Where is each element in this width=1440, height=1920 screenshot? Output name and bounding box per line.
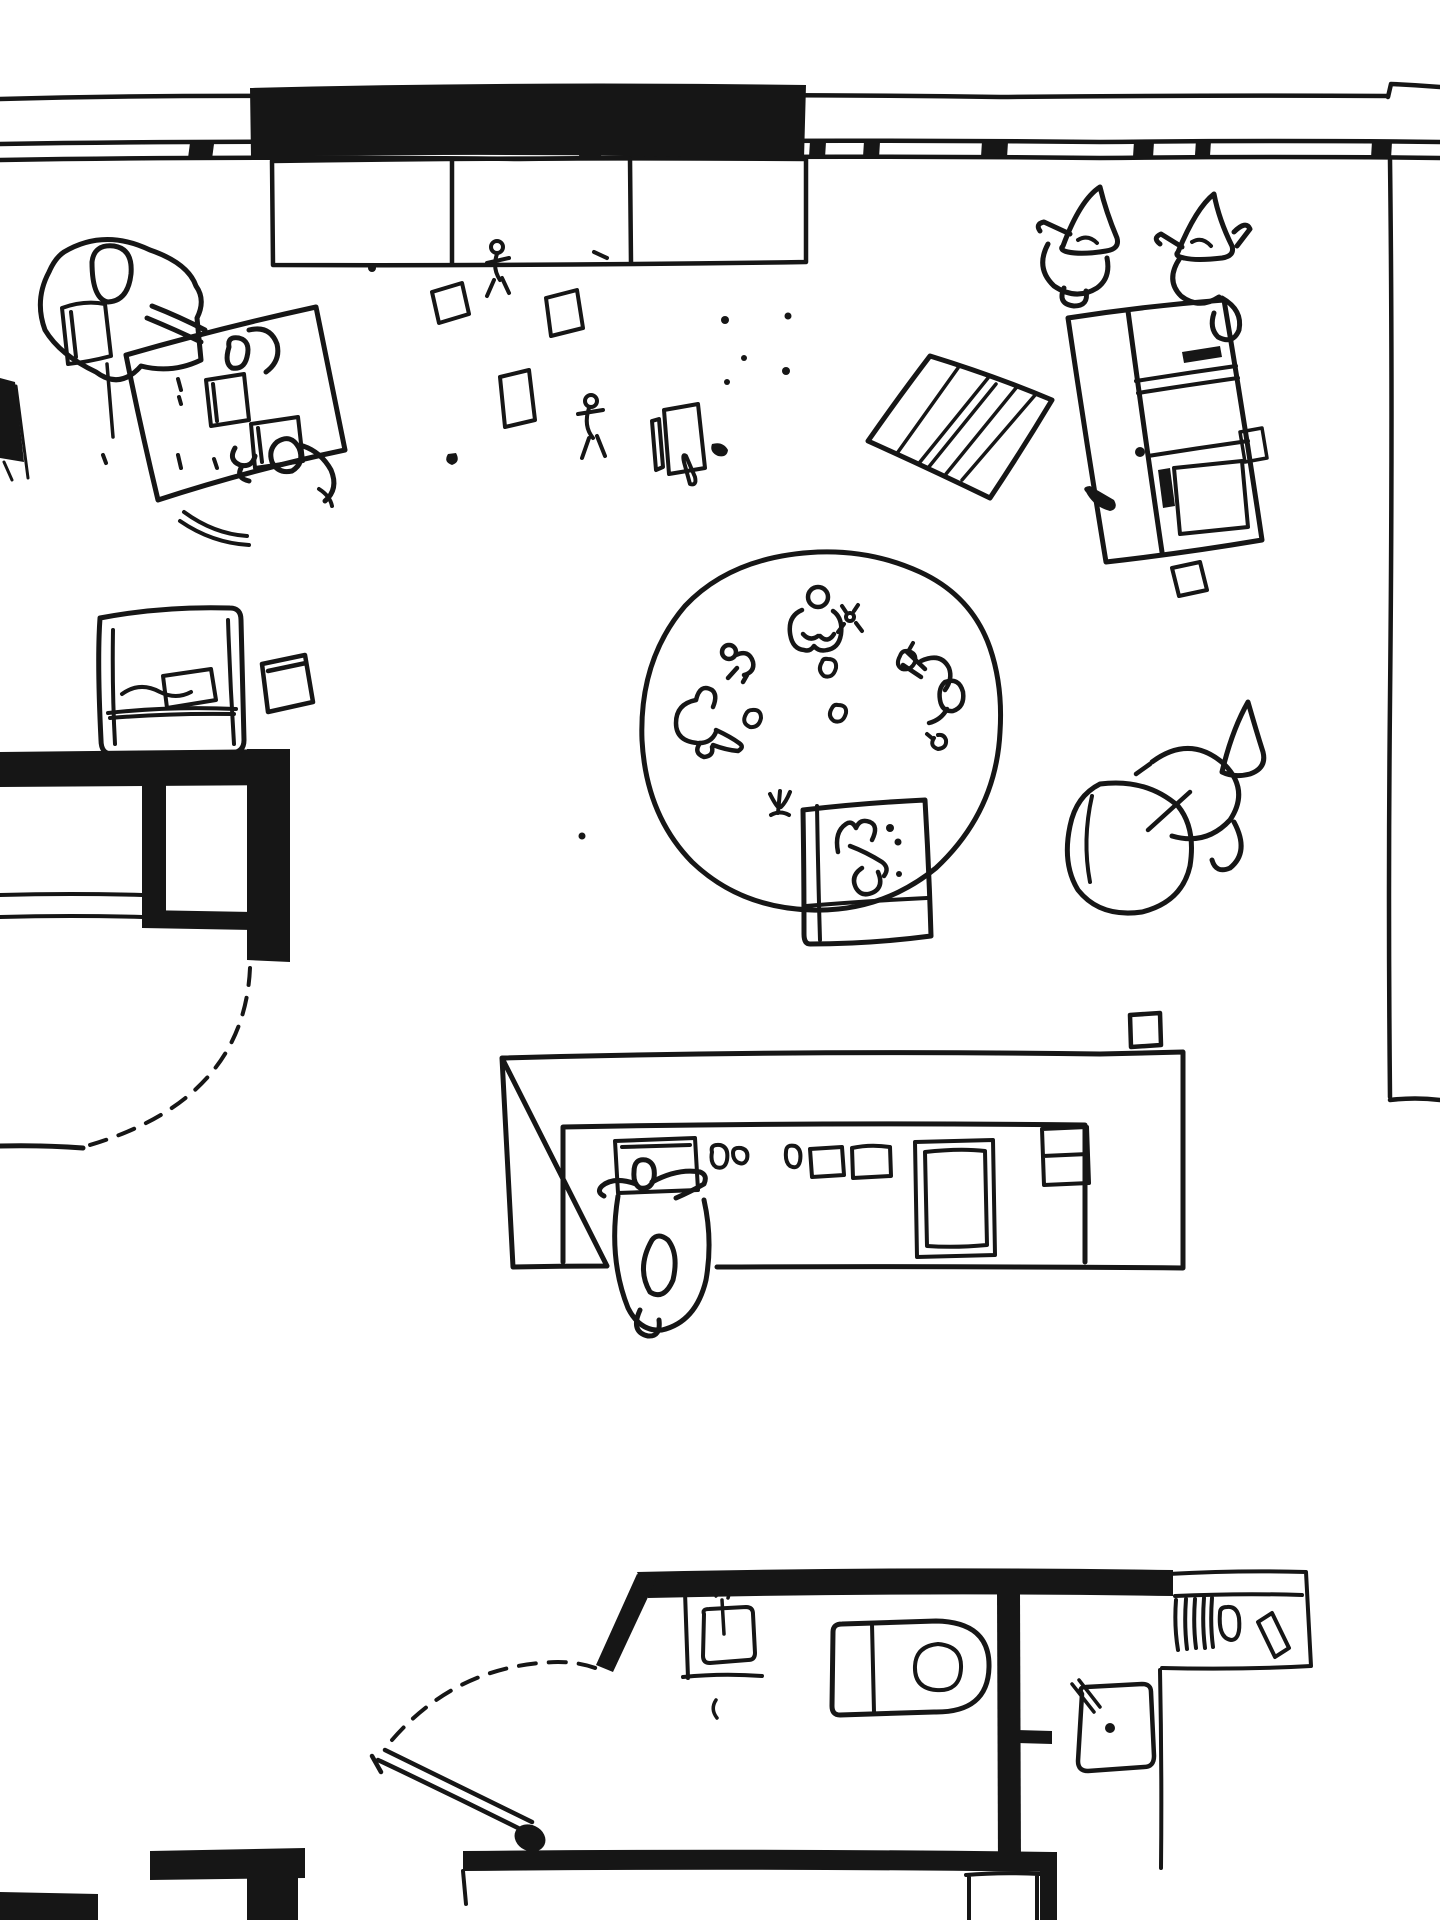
bathroom-block bbox=[0, 1568, 1311, 1920]
floor-mat bbox=[803, 800, 931, 944]
closet-door-leaf bbox=[0, 1146, 83, 1148]
desk-group bbox=[40, 239, 345, 545]
window-wall-step bbox=[1388, 84, 1440, 97]
rug-child-sitting bbox=[790, 587, 842, 651]
wall-bar-bottom-left-v bbox=[247, 1878, 298, 1920]
bath-wall-top bbox=[637, 1568, 1173, 1598]
standing-child-right bbox=[1156, 194, 1250, 340]
paper bbox=[500, 370, 535, 427]
kitchen-counter bbox=[502, 1013, 1183, 1336]
rug-object bbox=[744, 710, 761, 727]
armchair-blanket bbox=[163, 669, 216, 708]
bottom-right-room-lines bbox=[966, 1873, 1040, 1920]
bath-toilet bbox=[832, 1621, 989, 1715]
mat-child bbox=[837, 821, 887, 894]
rug-object bbox=[830, 705, 846, 722]
clerestory-band bbox=[250, 84, 806, 159]
beanbag-child-hat bbox=[1222, 702, 1264, 776]
counter-side-square bbox=[1130, 1013, 1161, 1047]
cabinet-black-comma bbox=[1084, 486, 1116, 511]
teacher-head bbox=[92, 246, 131, 302]
comma-mark bbox=[711, 443, 728, 456]
counter-bowl bbox=[786, 1146, 801, 1168]
counter-box bbox=[852, 1146, 891, 1178]
person-board bbox=[615, 1138, 698, 1193]
counter-shelf bbox=[1042, 1127, 1089, 1185]
right-wall bbox=[1389, 160, 1440, 1100]
desk-leg-line bbox=[107, 364, 113, 437]
person-body bbox=[615, 1196, 709, 1330]
bath-door-swing bbox=[392, 1662, 598, 1740]
desk-child-top-arm bbox=[249, 329, 278, 372]
teacher-figure bbox=[40, 239, 201, 379]
armchair bbox=[99, 608, 244, 757]
bath-sink-left bbox=[683, 1589, 762, 1678]
counter-stove bbox=[915, 1140, 995, 1257]
bath-door-leaf bbox=[378, 1750, 532, 1832]
ladder-strokes bbox=[1175, 1598, 1213, 1650]
right-wall-line bbox=[1389, 160, 1392, 1097]
bath-wall-diagonal bbox=[596, 1574, 656, 1672]
paper bbox=[432, 283, 469, 323]
bath-door bbox=[372, 1662, 598, 1857]
counter-person bbox=[599, 1138, 709, 1336]
bath-wall-stub bbox=[1017, 1730, 1052, 1744]
wall-bar-bottom-right bbox=[1040, 1852, 1057, 1920]
ladder-cup bbox=[1220, 1607, 1240, 1640]
window-bench bbox=[272, 158, 806, 265]
niche-item bbox=[1258, 1613, 1289, 1657]
paper bbox=[546, 290, 583, 336]
small-dash bbox=[594, 252, 607, 258]
running-child-small-2 bbox=[578, 395, 605, 458]
running-child-small-1 bbox=[487, 241, 509, 296]
floorplan-sketch bbox=[0, 0, 1440, 1920]
striped-mat bbox=[868, 356, 1052, 498]
person-leg bbox=[643, 1236, 675, 1295]
cabinet-black-bar bbox=[1158, 468, 1175, 508]
right-wall-corner bbox=[1390, 1099, 1440, 1101]
desk-dashes bbox=[103, 379, 217, 468]
small-paren-mark bbox=[713, 1700, 717, 1718]
wardrobe-cabinet bbox=[1068, 300, 1267, 596]
bath-wall-bottom bbox=[463, 1850, 1053, 1872]
rug-child-lying bbox=[903, 652, 963, 723]
paper-strip bbox=[652, 419, 663, 470]
pillow bbox=[262, 655, 313, 712]
circle-rug bbox=[642, 552, 1001, 910]
rug-child-kneeling bbox=[676, 688, 742, 757]
bath-sink-right bbox=[1072, 1680, 1154, 1771]
cabinet-bit-below bbox=[1172, 562, 1207, 596]
rug-sprout-toy bbox=[770, 791, 790, 815]
rug-object-small bbox=[927, 734, 946, 749]
rug-object bbox=[820, 659, 836, 677]
wall-bar-bottom-left-h bbox=[150, 1848, 305, 1880]
blob bbox=[446, 453, 458, 465]
desk-child-top-head bbox=[227, 338, 248, 369]
floorplan-svg bbox=[0, 0, 1440, 1920]
counter-box bbox=[810, 1147, 844, 1177]
closet-door-swing bbox=[83, 968, 250, 1147]
bath-wall-vertical bbox=[997, 1592, 1021, 1868]
wall-stub-left bbox=[0, 378, 28, 480]
paper-bits bbox=[721, 313, 792, 386]
wall-bar-corner bbox=[0, 1892, 98, 1920]
standing-child-left bbox=[1038, 187, 1117, 306]
counter-bowl bbox=[733, 1148, 747, 1164]
closet-nook bbox=[0, 749, 290, 1148]
beanbag-child bbox=[1067, 702, 1263, 913]
desk-paper-1 bbox=[206, 374, 249, 426]
storage-niche bbox=[1162, 1571, 1311, 1668]
desk-child-right-head bbox=[271, 439, 301, 472]
rug-child-crawling bbox=[722, 645, 753, 682]
counter-bowl bbox=[712, 1145, 728, 1168]
desk-chair-arc bbox=[180, 512, 249, 545]
